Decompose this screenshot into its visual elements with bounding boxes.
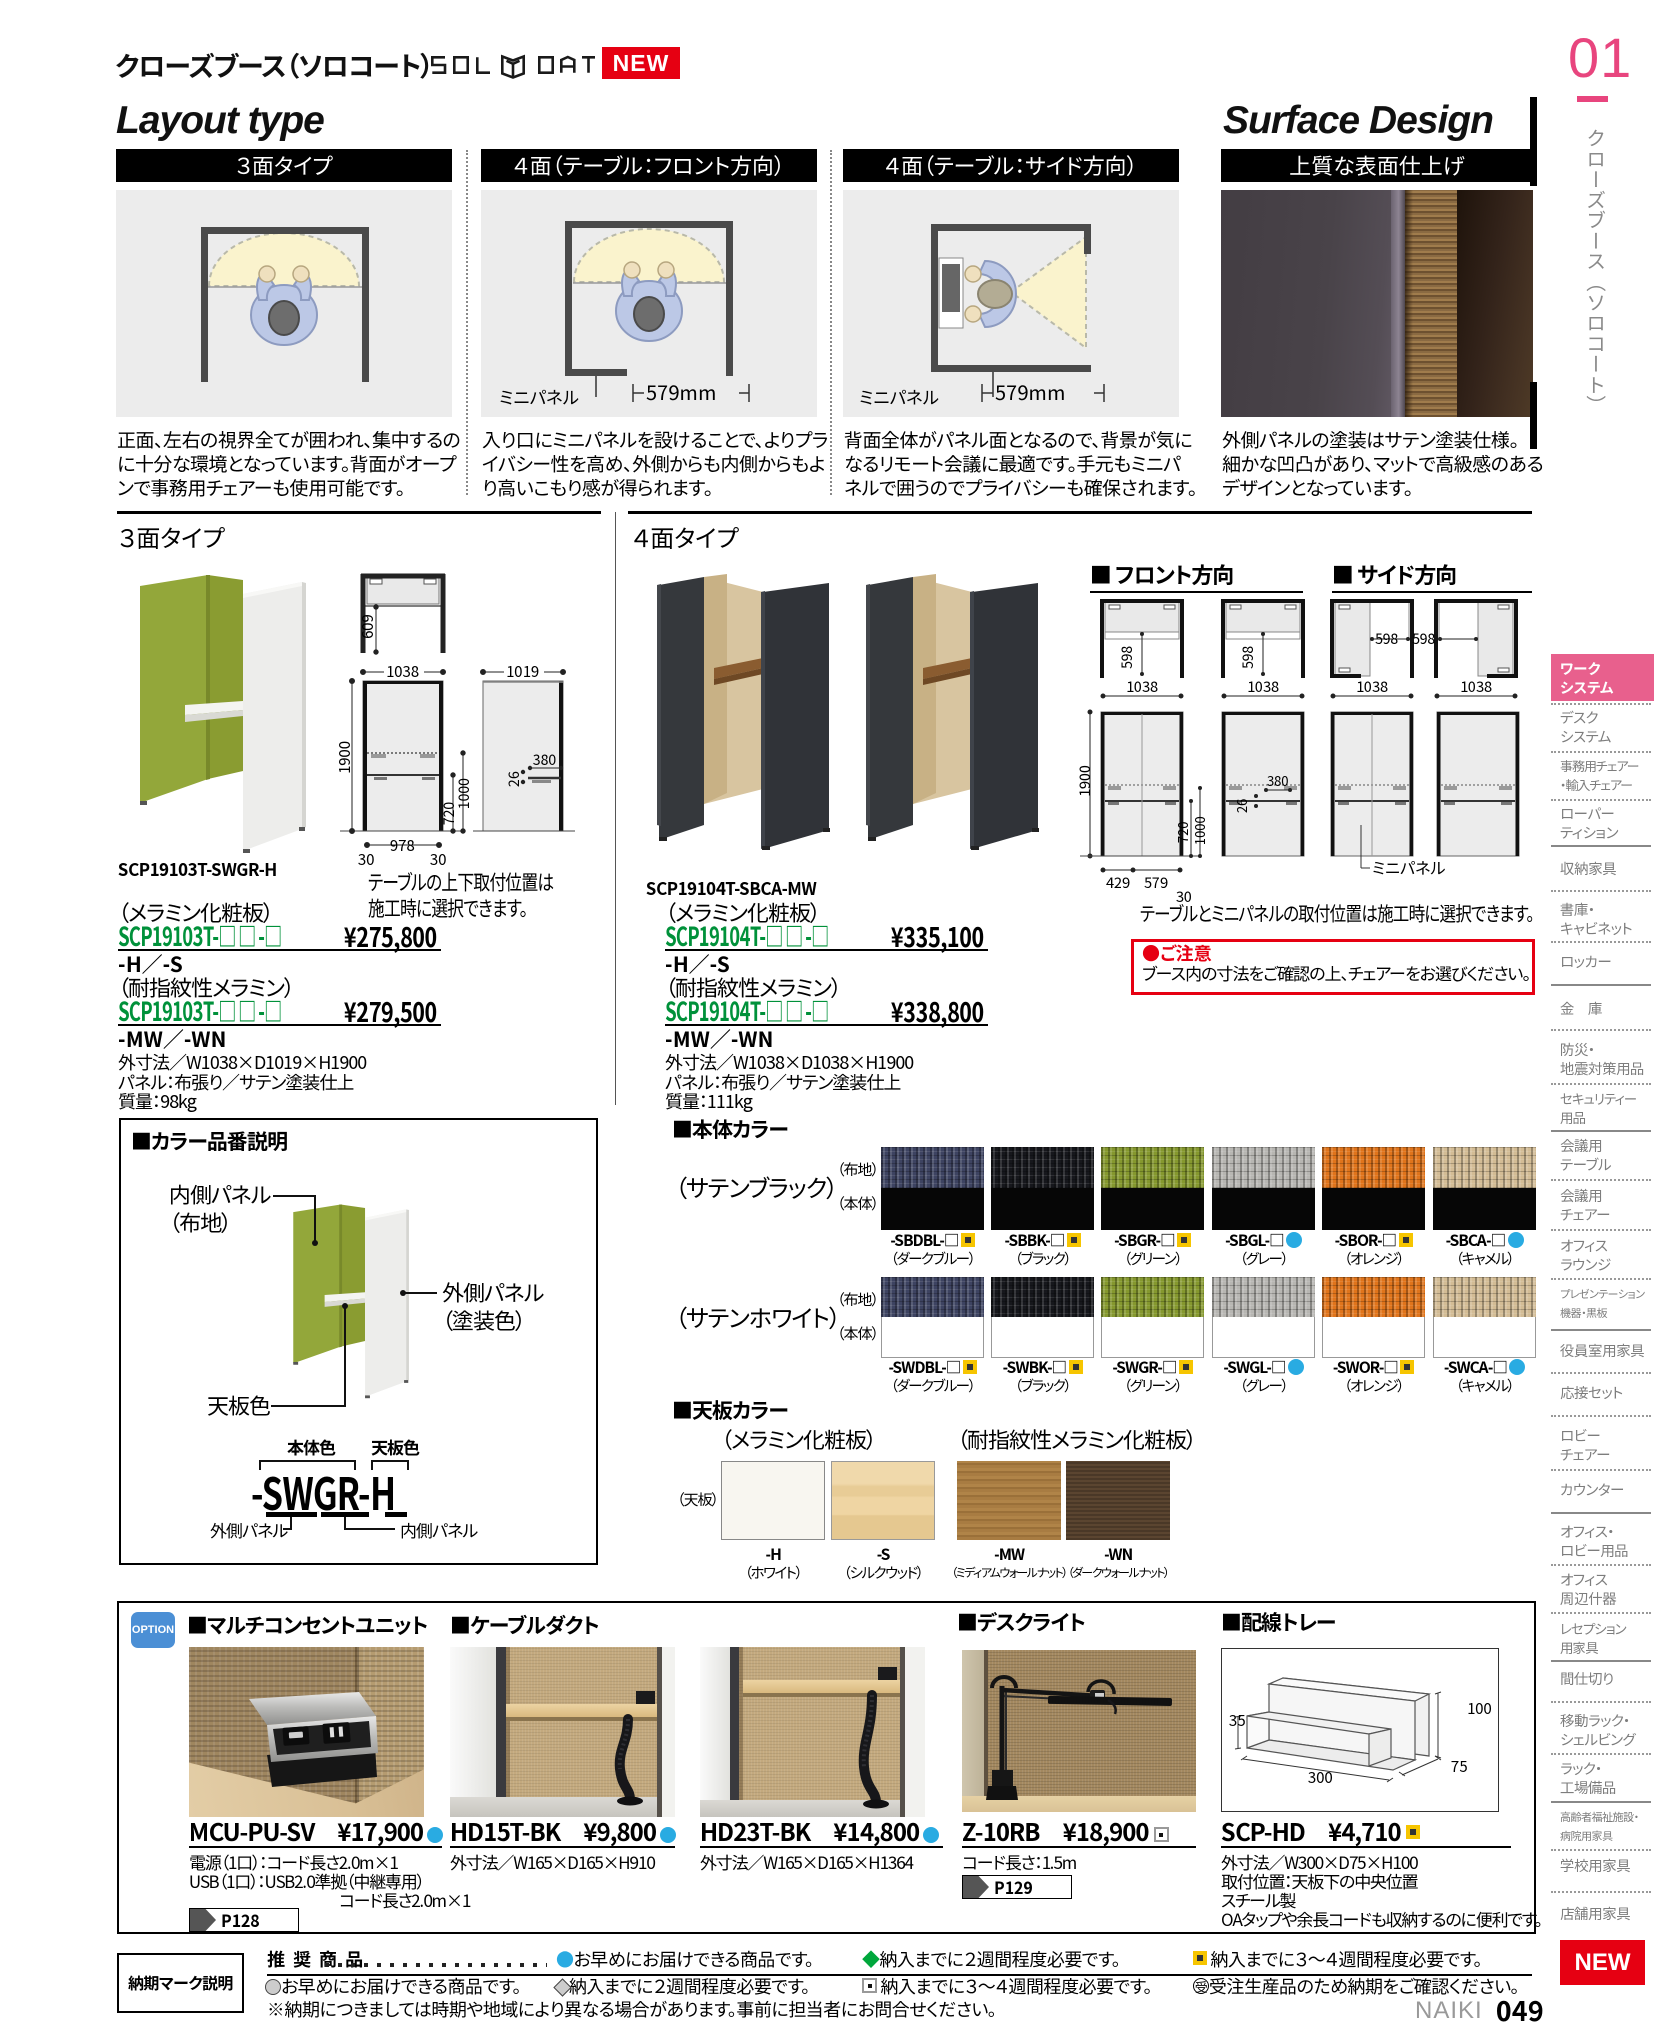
svg-text:ミニパネル: ミニパネル <box>1372 855 1445 879</box>
svg-text:978: 978 <box>390 835 416 856</box>
svg-text:1019: 1019 <box>506 661 540 682</box>
svg-text:579mm: 579mm <box>995 377 1065 406</box>
svg-text:598: 598 <box>1117 645 1137 669</box>
svg-text:579mm: 579mm <box>646 377 716 406</box>
svg-text:1900: 1900 <box>1074 765 1095 797</box>
svg-text:1000: 1000 <box>454 778 474 809</box>
svg-text:26: 26 <box>504 771 524 787</box>
svg-text:1900: 1900 <box>334 741 355 774</box>
svg-text:75: 75 <box>1451 1756 1468 1777</box>
svg-text:35: 35 <box>1229 1710 1246 1731</box>
svg-text:380: 380 <box>533 750 557 770</box>
svg-text:1038: 1038 <box>1126 676 1158 697</box>
svg-text:598: 598 <box>1238 645 1258 669</box>
svg-text:ミニパネル: ミニパネル <box>499 385 579 410</box>
svg-text:300: 300 <box>1308 1767 1333 1788</box>
svg-text:598: 598 <box>1412 629 1436 649</box>
svg-text:598: 598 <box>1375 629 1399 649</box>
svg-text:579: 579 <box>1143 872 1168 893</box>
svg-text:429: 429 <box>1106 872 1130 893</box>
svg-text:26: 26 <box>1232 799 1251 813</box>
svg-text:380: 380 <box>1267 771 1289 790</box>
svg-text:1038: 1038 <box>1247 676 1279 697</box>
svg-text:100: 100 <box>1467 1698 1492 1719</box>
svg-text:1038: 1038 <box>386 661 420 682</box>
svg-text:1000: 1000 <box>1190 816 1209 845</box>
svg-text:1038: 1038 <box>1460 676 1492 697</box>
svg-text:1038: 1038 <box>1356 676 1388 697</box>
svg-text:609: 609 <box>357 613 378 639</box>
svg-text:ミニパネル: ミニパネル <box>859 385 939 410</box>
